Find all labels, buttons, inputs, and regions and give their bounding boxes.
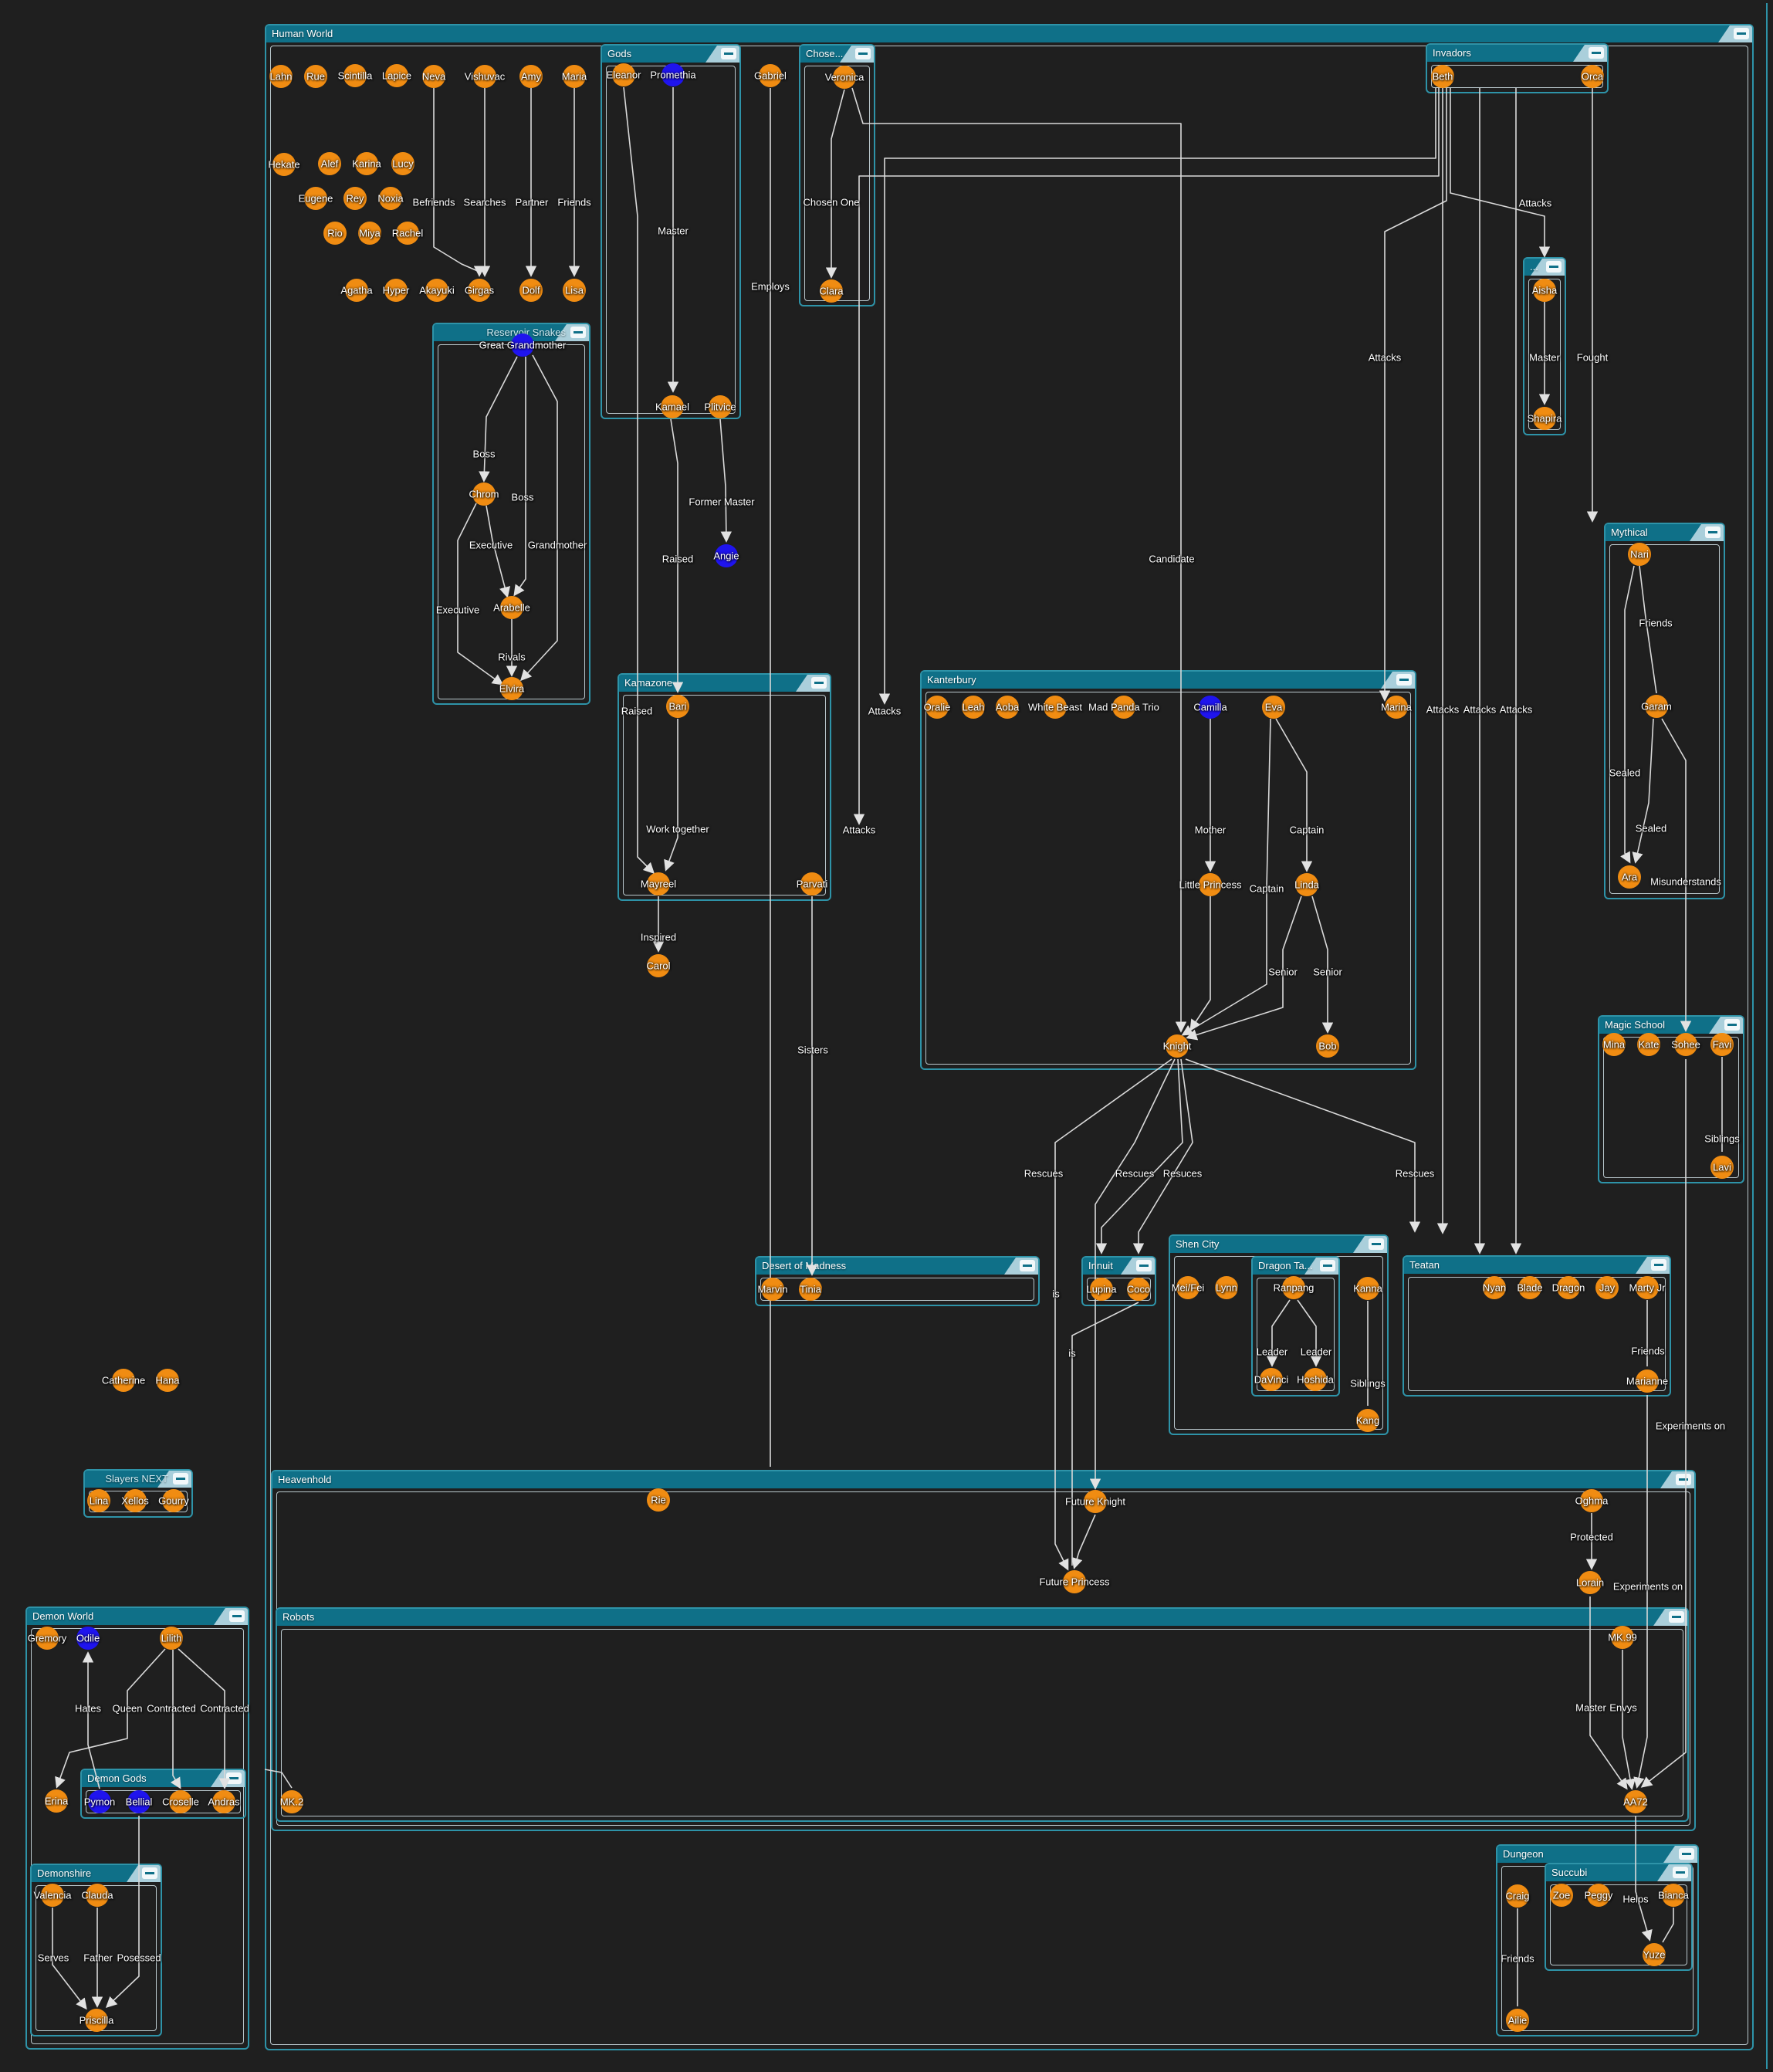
edge-label: Friends	[1501, 1953, 1534, 1965]
node-label: Garam	[1641, 701, 1672, 713]
node-tinia[interactable]: Tinia	[799, 1278, 822, 1301]
group-body	[606, 66, 736, 414]
canvas-right-border	[1766, 3, 1768, 2069]
node-akayuki[interactable]: Akayuki	[425, 279, 448, 302]
group-title: Shen City	[1176, 1238, 1219, 1250]
node-hyper[interactable]: Hyper	[384, 279, 408, 302]
edge-label: Friends	[557, 197, 590, 208]
group-titlebar-heavenhold[interactable]: Heavenhold	[272, 1471, 1694, 1488]
edge-label: Work together	[646, 824, 709, 835]
node-blade[interactable]: Blade	[1518, 1276, 1541, 1299]
group-titlebar-gods[interactable]: Gods	[602, 46, 739, 63]
node-label: Kang	[1356, 1415, 1379, 1427]
node-aoba[interactable]: Aoba	[996, 696, 1019, 719]
node-label: Orca	[1582, 71, 1603, 83]
group-titlebar-magic-school[interactable]: Magic School	[1599, 1017, 1743, 1034]
node-label: Aoba	[996, 702, 1019, 713]
group-title: Innuit	[1088, 1260, 1113, 1271]
node-label: Clara	[819, 286, 843, 297]
node-kang[interactable]: Kang	[1356, 1409, 1379, 1432]
node-miya[interactable]: Miya	[358, 222, 381, 245]
node-lina[interactable]: Lina	[87, 1489, 110, 1512]
group-body	[623, 695, 826, 895]
node-pymon[interactable]: Pymon	[88, 1790, 111, 1813]
node-craig[interactable]: Craig	[1506, 1884, 1529, 1908]
group-titlebar-demon-world[interactable]: Demon World	[27, 1608, 248, 1625]
node-valencia[interactable]: Valencia	[41, 1884, 64, 1907]
group-reservoir-snakes: Reservoir Snakes	[432, 323, 590, 705]
collapse-minus-icon[interactable]	[1734, 28, 1749, 39]
node-label: Marina	[1381, 702, 1412, 713]
graph-canvas[interactable]: Human WorldGodsChose...Invadors...Reserv…	[0, 0, 1773, 2072]
node-label: Gourry	[158, 1495, 189, 1507]
group-kanterbury: Kanterbury	[920, 670, 1416, 1070]
group-desert-of-madness: Desert of Madness	[755, 1256, 1040, 1306]
node-label: Jay	[1599, 1282, 1615, 1294]
collapse-minus-icon[interactable]	[1369, 1238, 1384, 1250]
node-ara[interactable]: Ara	[1618, 865, 1641, 889]
edge-label: Senior	[1268, 967, 1298, 978]
node-maria[interactable]: Maria	[563, 65, 586, 88]
node-bob[interactable]: Bob	[1316, 1034, 1339, 1058]
node-andras[interactable]: Andras	[212, 1790, 235, 1813]
node-dragon[interactable]: Dragon	[1557, 1276, 1580, 1299]
collapse-minus-icon[interactable]	[1396, 674, 1412, 686]
group-title: Demon Gods	[87, 1772, 147, 1784]
collapse-minus-icon[interactable]	[1320, 1260, 1335, 1271]
collapse-minus-icon[interactable]	[1705, 526, 1721, 538]
collapse-minus-icon[interactable]	[1676, 1474, 1691, 1485]
node-label: Lahn	[270, 71, 293, 83]
group-titlebar-demon-gods[interactable]: Demon Gods	[82, 1770, 245, 1787]
node-label: Oralie	[924, 702, 951, 713]
node-knight[interactable]: Knight	[1166, 1034, 1189, 1058]
node-hana[interactable]: Hana	[156, 1369, 179, 1392]
edge-label: Friends	[1631, 1346, 1664, 1357]
node-carol[interactable]: Carol	[647, 954, 670, 977]
edge-label: Rescues	[1024, 1168, 1064, 1180]
node-promethia[interactable]: Promethia	[661, 63, 685, 86]
group-titlebar-demonshire[interactable]: Demonshire	[32, 1865, 161, 1882]
node-kamael[interactable]: Kamael	[661, 395, 684, 418]
group-titlebar-innuit[interactable]: Innuit	[1083, 1258, 1155, 1275]
node-label: Hyper	[383, 285, 410, 296]
group-title: Robots	[283, 1611, 314, 1623]
collapse-minus-icon[interactable]	[855, 48, 871, 59]
group-title: Slayers NEXT	[105, 1473, 168, 1485]
node-oghma[interactable]: Oghma	[1580, 1489, 1603, 1512]
node-label: Lucy	[392, 158, 413, 170]
edge-label: Contracted	[147, 1703, 196, 1715]
node-sohee[interactable]: Sohee	[1674, 1033, 1697, 1056]
edge-label: Executive	[436, 604, 479, 616]
edge-label: Friends	[1639, 618, 1672, 629]
edge-label: Employs	[751, 281, 790, 293]
node-lucy[interactable]: Lucy	[391, 152, 414, 175]
node-label: Eva	[1265, 702, 1282, 713]
edge-label: Captain	[1290, 824, 1325, 836]
node-rio[interactable]: Rio	[323, 222, 347, 245]
edge-label: Searches	[464, 197, 506, 208]
node-label: Rie	[651, 1495, 666, 1506]
node-parvati[interactable]: Parvati	[800, 872, 824, 895]
node-label: Lorain	[1576, 1577, 1604, 1589]
node-label: Amy	[521, 71, 541, 83]
node-label: Bellial	[126, 1796, 153, 1808]
node-rey[interactable]: Rey	[343, 187, 367, 210]
node-label: Knight	[1163, 1041, 1192, 1052]
node-eva[interactable]: Eva	[1262, 696, 1285, 719]
group-invadors: Invadors	[1426, 43, 1609, 93]
group-title: Mythical	[1611, 526, 1648, 538]
node-lynn[interactable]: Lynn	[1215, 1276, 1238, 1299]
node-label: Lapice	[382, 70, 411, 82]
edge-label: Candidate	[1149, 554, 1194, 565]
node-garam[interactable]: Garam	[1645, 695, 1668, 718]
node-marty-jr[interactable]: Marty Jr	[1636, 1276, 1659, 1299]
node-label: Noxia	[377, 193, 403, 205]
group-titlebar-mythical[interactable]: Mythical	[1606, 524, 1724, 541]
group-title: Demonshire	[37, 1867, 91, 1879]
node-label: Peggy	[1585, 1890, 1613, 1901]
node-ranpang[interactable]: Ranpang	[1282, 1276, 1305, 1299]
node-lavi[interactable]: Lavi	[1710, 1156, 1734, 1179]
node-oralie[interactable]: Oralie	[925, 696, 949, 719]
group-titlebar-chose[interactable]: Chose...	[800, 46, 874, 63]
collapse-minus-icon[interactable]	[1724, 1019, 1740, 1031]
group-body	[925, 692, 1411, 1065]
edge-label: Raised	[662, 554, 693, 565]
node-label: Hana	[155, 1375, 179, 1386]
edge-label: Attacks	[1519, 198, 1552, 209]
node-priscilla[interactable]: Priscilla	[85, 2009, 108, 2032]
group-titlebar-dragon-ta[interactable]: Dragon Ta...	[1253, 1258, 1338, 1275]
node-mk-2[interactable]: MK.2	[280, 1790, 303, 1813]
node-rue[interactable]: Rue	[304, 65, 327, 88]
group-title: ...	[1530, 261, 1538, 273]
node-nyan[interactable]: Nyan	[1483, 1276, 1506, 1299]
node-aisha[interactable]: Aisha	[1533, 279, 1556, 302]
node-favi[interactable]: Favi	[1710, 1033, 1734, 1056]
node-jay[interactable]: Jay	[1595, 1276, 1619, 1299]
node-gourry[interactable]: Gourry	[162, 1489, 185, 1512]
node-label: Catherine	[102, 1375, 145, 1386]
edge-label: Leader	[1301, 1346, 1331, 1358]
node-chrom[interactable]: Chrom	[472, 482, 496, 506]
group-title: Teatan	[1409, 1259, 1440, 1271]
edge-label: Attacks	[1463, 704, 1497, 716]
node-label: Craig	[1505, 1891, 1529, 1902]
edge-label: Executive	[469, 540, 513, 551]
edge-label: Befriends	[413, 197, 455, 208]
node-label: Miya	[359, 228, 380, 239]
node-lupina[interactable]: Lupina	[1090, 1278, 1113, 1301]
group-title: Chose...	[806, 48, 843, 59]
edge-label: Misunderstands	[1650, 876, 1721, 888]
group-title: Kamazone	[624, 677, 672, 689]
group-titlebar-kanterbury[interactable]: Kanterbury	[922, 672, 1415, 689]
group-body	[1609, 544, 1720, 894]
node-vishuvac[interactable]: Vishuvac	[473, 65, 496, 88]
node-lahn[interactable]: Lahn	[269, 65, 293, 88]
edge-label: Attacks	[843, 824, 876, 836]
node-elvira[interactable]: Elvira	[500, 677, 523, 700]
node-label: Karina	[352, 158, 381, 170]
node-label: Girgas	[465, 285, 494, 296]
node-eugene[interactable]: Eugene	[304, 187, 327, 210]
group-titlebar-robots[interactable]: Robots	[277, 1609, 1687, 1626]
group-titlebar-teatan[interactable]: Teatan	[1404, 1257, 1670, 1274]
node-label: Aisha	[1532, 285, 1558, 296]
collapse-minus-icon[interactable]	[1589, 47, 1604, 59]
edge-label: Experiments on	[1613, 1581, 1683, 1593]
node-arabelle[interactable]: Arabelle	[500, 596, 523, 619]
node-label: Elvira	[499, 683, 525, 695]
edge-label: Inspired	[641, 932, 676, 943]
group-titlebar-dungeon[interactable]: Dungeon	[1497, 1846, 1697, 1863]
node-clara[interactable]: Clara	[820, 279, 843, 303]
node-scintilla[interactable]: Scintilla	[343, 64, 367, 87]
node-label: Nari	[1630, 549, 1649, 560]
node-lapice[interactable]: Lapice	[385, 64, 408, 87]
node-linda[interactable]: Linda	[1295, 873, 1318, 896]
edge-label: Protected	[1570, 1532, 1613, 1543]
collapse-minus-icon[interactable]	[1673, 1867, 1688, 1878]
node-future-knight[interactable]: Future Knight	[1084, 1490, 1107, 1513]
edge-label: Partner	[516, 197, 549, 208]
collapse-minus-icon[interactable]	[1136, 1260, 1152, 1271]
group-title: Dungeon	[1503, 1848, 1544, 1860]
group-titlebar-reservoir-snakes[interactable]: Reservoir Snakes	[434, 324, 589, 341]
node-gremory[interactable]: Gremory	[36, 1627, 59, 1650]
node-great-grandmother[interactable]: Great Grandmother	[511, 333, 534, 357]
node-bellial[interactable]: Bellial	[127, 1790, 151, 1813]
edge-label: Father	[83, 1952, 113, 1964]
node-noxia[interactable]: Noxia	[379, 187, 402, 210]
group-title: Heavenhold	[278, 1474, 331, 1485]
node-coco[interactable]: Coco	[1127, 1278, 1150, 1301]
node-marvin[interactable]: Marvin	[761, 1278, 784, 1301]
node-label: Blade	[1517, 1282, 1542, 1294]
node-leah[interactable]: Leah	[962, 696, 985, 719]
node-gabriel[interactable]: Gabriel	[759, 64, 782, 87]
node-plitvice[interactable]: Plitvice	[709, 395, 732, 418]
node-label: Rue	[306, 71, 325, 83]
node-camilla[interactable]: Camilla	[1199, 696, 1222, 719]
node-label: Sohee	[1671, 1039, 1700, 1051]
collapse-minus-icon[interactable]	[721, 48, 736, 59]
edge-label: Attacks	[1369, 352, 1402, 364]
edge-label: Contracted	[200, 1703, 249, 1715]
collapse-minus-icon[interactable]	[226, 1772, 242, 1784]
edge-label: Master	[1575, 1702, 1606, 1714]
node-yuze[interactable]: Yuze	[1643, 1943, 1666, 1966]
node-label: Neva	[422, 71, 445, 83]
node-nari[interactable]: Nari	[1628, 543, 1651, 566]
node-alef[interactable]: Alef	[318, 152, 341, 175]
node-label: Xellos	[121, 1495, 148, 1507]
node-label: Lupina	[1086, 1284, 1116, 1295]
group-titlebar-invadors-sub[interactable]: ...	[1524, 259, 1565, 276]
group-titlebar-invadors[interactable]: Invadors	[1427, 45, 1607, 62]
group-title: Desert of Madness	[762, 1260, 846, 1271]
node-label: Tinia	[800, 1284, 821, 1295]
node-label: Beth	[1433, 71, 1453, 83]
node-label: AA72	[1623, 1796, 1648, 1808]
node-label: Yuze	[1643, 1949, 1666, 1961]
node-dolf[interactable]: Dolf	[519, 279, 543, 302]
node-future-princess[interactable]: Future Princess	[1063, 1570, 1086, 1593]
edge-label: is	[1068, 1348, 1075, 1359]
group-title: Magic School	[1605, 1019, 1665, 1031]
node-rie[interactable]: Rie	[647, 1488, 670, 1512]
group-title: Demon World	[32, 1610, 93, 1622]
node-hekate[interactable]: Hekate	[272, 153, 296, 176]
node-label: Lisa	[565, 285, 584, 296]
group-titlebar-succubi[interactable]: Succubi	[1546, 1864, 1691, 1881]
group-titlebar-desert-of-madness[interactable]: Desert of Madness	[756, 1258, 1038, 1275]
group-titlebar-slayers-next[interactable]: Slayers NEXT	[85, 1471, 191, 1488]
collapse-minus-icon[interactable]	[229, 1610, 245, 1622]
node-label: Rey	[346, 193, 364, 205]
node-karina[interactable]: Karina	[355, 152, 378, 175]
edge-label: Rescues	[1115, 1168, 1155, 1180]
group-titlebar-human-world[interactable]: Human World	[266, 25, 1752, 42]
node-label: MK.2	[280, 1796, 303, 1808]
node-kanna[interactable]: Kanna	[1356, 1277, 1379, 1300]
edge-label: Chosen One	[804, 197, 860, 208]
node-veronica[interactable]: Veronica	[833, 66, 856, 89]
edge-label: Experiments on	[1656, 1420, 1725, 1432]
node-croselle[interactable]: Croselle	[169, 1790, 192, 1813]
node-catherine[interactable]: Catherine	[112, 1369, 135, 1392]
collapse-minus-icon[interactable]	[1679, 1848, 1694, 1860]
node-mad-panda-trio[interactable]: Mad Panda Trio	[1112, 696, 1135, 719]
node-kate[interactable]: Kate	[1637, 1033, 1660, 1056]
node-label: Odile	[76, 1633, 100, 1644]
node-davinci[interactable]: DaVinci	[1260, 1368, 1283, 1391]
node-amy[interactable]: Amy	[519, 65, 543, 88]
collapse-minus-icon[interactable]	[173, 1473, 188, 1485]
node-bari[interactable]: Bari	[666, 695, 689, 718]
node-label: Maria	[562, 71, 587, 83]
node-white-beast[interactable]: White Beast	[1044, 696, 1067, 719]
edge-label: Rescues	[1396, 1168, 1435, 1180]
node-mayreel[interactable]: Mayreel	[647, 872, 670, 895]
group-titlebar-shen-city[interactable]: Shen City	[1170, 1236, 1387, 1253]
group-teatan: Teatan	[1402, 1255, 1671, 1397]
node-label: Coco	[1127, 1284, 1150, 1295]
node-rachel[interactable]: Rachel	[396, 222, 419, 245]
node-lisa[interactable]: Lisa	[563, 279, 586, 302]
group-title: Human World	[272, 28, 333, 39]
edge-label: Boss	[473, 449, 496, 460]
node-bianca[interactable]: Bianca	[1662, 1884, 1685, 1907]
node-ailie[interactable]: Ailie	[1506, 2009, 1529, 2032]
node-clauda[interactable]: Clauda	[86, 1884, 109, 1907]
node-label: Dolf	[522, 285, 540, 296]
node-label: Erina	[45, 1796, 68, 1807]
node-neva[interactable]: Neva	[422, 65, 445, 88]
edge-label: Siblings	[1704, 1133, 1740, 1145]
edge-label: Resuces	[1163, 1168, 1203, 1180]
node-label: Lina	[90, 1495, 109, 1507]
node-label: Zoe	[1553, 1890, 1570, 1901]
node-girgas[interactable]: Girgas	[468, 279, 491, 302]
edge-label: Former Master	[689, 496, 754, 508]
node-label: Kate	[1639, 1039, 1660, 1051]
node-label: Lilith	[161, 1633, 182, 1644]
edge-label: Grandmother	[528, 540, 587, 551]
node-shapira[interactable]: Shapira	[1533, 407, 1556, 430]
edge-label: Boss	[512, 492, 534, 503]
edge-label: Raised	[621, 706, 652, 717]
node-label: Marvin	[757, 1284, 787, 1295]
node-odile[interactable]: Odile	[76, 1627, 100, 1650]
edge-label: Queen	[112, 1703, 142, 1715]
edge-label: Envys	[1609, 1702, 1636, 1714]
node-zoe[interactable]: Zoe	[1550, 1884, 1573, 1907]
node-label: Ailie	[1508, 2015, 1528, 2026]
edge-label: Attacks	[1500, 704, 1533, 716]
edge-label: Helps	[1622, 1894, 1648, 1905]
edge-label: Posessed	[117, 1952, 161, 1964]
group-title: Dragon Ta...	[1258, 1260, 1313, 1271]
group-titlebar-kamazone[interactable]: Kamazone	[619, 675, 830, 692]
edge-label: Master	[1529, 352, 1560, 364]
collapse-minus-icon[interactable]	[570, 327, 586, 338]
node-orca[interactable]: Orca	[1581, 65, 1604, 88]
collapse-minus-icon[interactable]	[1669, 1611, 1684, 1623]
group-body	[1431, 65, 1603, 88]
node-marina[interactable]: Marina	[1385, 696, 1408, 719]
node-xellos[interactable]: Xellos	[124, 1489, 147, 1512]
collapse-minus-icon[interactable]	[811, 677, 827, 689]
node-peggy[interactable]: Peggy	[1587, 1884, 1610, 1907]
node-lilith[interactable]: Lilith	[160, 1627, 183, 1650]
node-little-princess[interactable]: Little Princess	[1199, 873, 1222, 896]
node-mei-fei[interactable]: Mei/Fei	[1176, 1276, 1199, 1299]
node-agatha[interactable]: Agatha	[345, 279, 368, 302]
node-beth[interactable]: Beth	[1431, 65, 1454, 88]
edge-label: Fought	[1577, 352, 1608, 364]
node-hoshida[interactable]: Hoshida	[1304, 1368, 1327, 1391]
collapse-minus-icon[interactable]	[142, 1867, 157, 1879]
node-mk-99[interactable]: MK.99	[1611, 1626, 1634, 1649]
node-lorain[interactable]: Lorain	[1578, 1571, 1602, 1594]
node-angie[interactable]: Angie	[715, 544, 738, 567]
node-aa72[interactable]: AA72	[1624, 1790, 1647, 1813]
edge-label: Leader	[1257, 1346, 1287, 1358]
collapse-minus-icon[interactable]	[1651, 1259, 1666, 1271]
node-eleanor[interactable]: Eleanor	[612, 63, 635, 86]
group-title: Kanterbury	[927, 674, 976, 686]
node-label: Bianca	[1658, 1890, 1689, 1901]
edge-label: Captain	[1250, 883, 1284, 895]
edge-label: Sealed	[1636, 823, 1666, 835]
node-erina[interactable]: Erina	[45, 1789, 68, 1813]
node-label: Lavi	[1713, 1162, 1731, 1173]
edge-label: Attacks	[1426, 704, 1460, 716]
node-label: Nyan	[1483, 1282, 1506, 1294]
node-mina[interactable]: Mina	[1602, 1033, 1626, 1056]
edge-label: Sisters	[797, 1044, 828, 1056]
collapse-minus-icon[interactable]	[1020, 1260, 1035, 1271]
collapse-minus-icon[interactable]	[1546, 261, 1562, 273]
node-marianne[interactable]: Marianne	[1636, 1369, 1659, 1393]
node-label: Mina	[1603, 1039, 1625, 1051]
node-label: Bari	[668, 701, 686, 713]
